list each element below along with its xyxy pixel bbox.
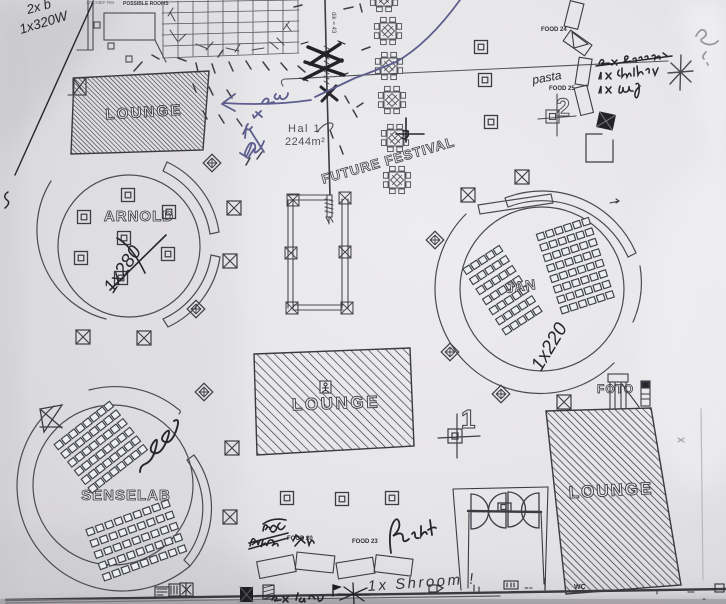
svg-text:Hal 1: Hal 1 xyxy=(288,123,321,135)
svg-text:WC: WC xyxy=(574,584,586,591)
svg-text:FOTO: FOTO xyxy=(597,382,634,396)
svg-text:dik = 43: dik = 43 xyxy=(330,12,336,34)
svg-text:POSSIBLE ROOMS: POSSIBLE ROOMS xyxy=(123,1,169,7)
svg-text:FOOD 23: FOOD 23 xyxy=(352,539,378,545)
svg-text:1: 1 xyxy=(461,404,475,434)
svg-text:ARNOLD: ARNOLD xyxy=(104,208,174,225)
svg-text:ARCHIEF RM: ARCHIEF RM xyxy=(86,0,114,5)
svg-text:2244m²: 2244m² xyxy=(285,136,325,148)
svg-text:LOUNGE: LOUNGE xyxy=(292,392,381,414)
svg-text:FOOD 25: FOOD 25 xyxy=(549,86,575,92)
svg-text:FOOD 24: FOOD 24 xyxy=(541,27,567,33)
